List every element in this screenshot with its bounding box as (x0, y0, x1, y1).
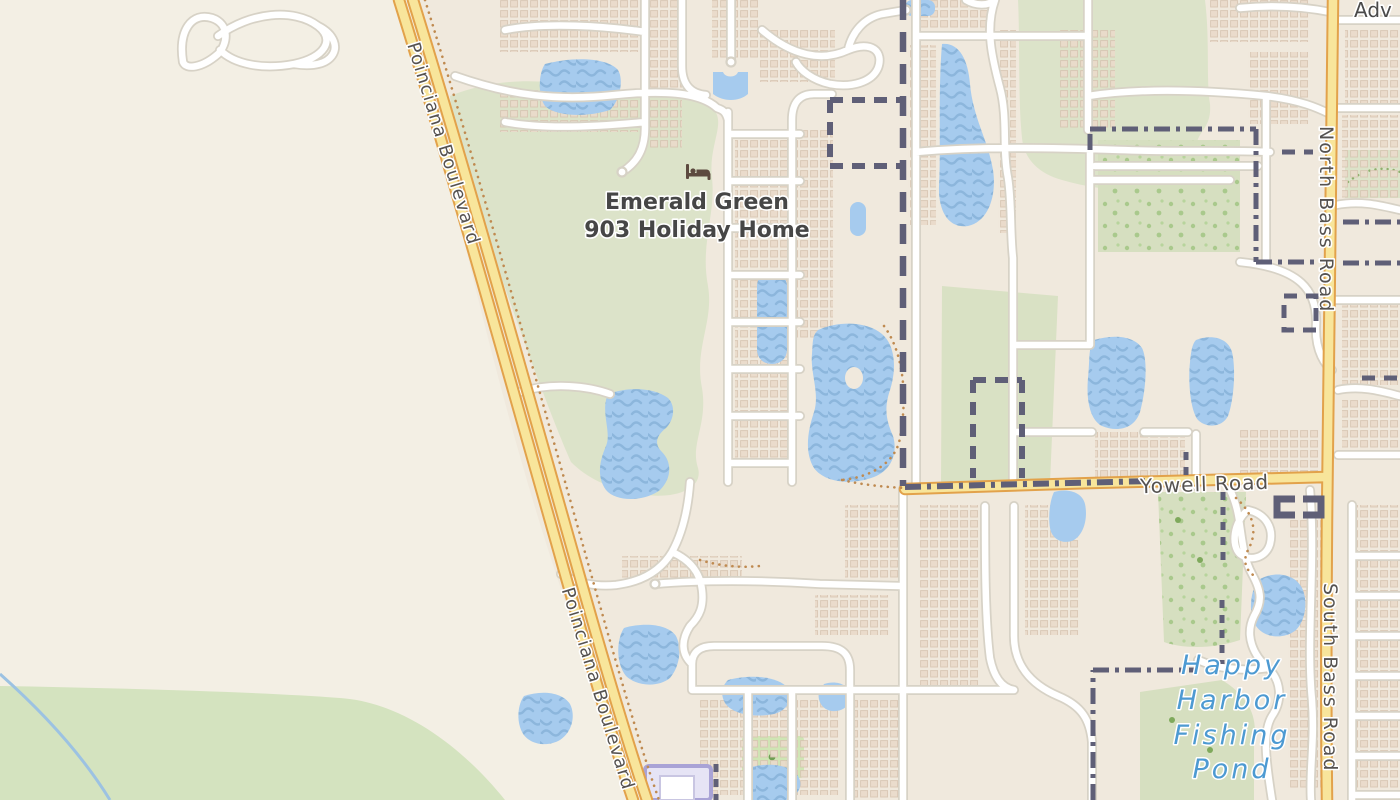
road-label-north-bass: North Bass Road (1315, 126, 1337, 313)
poi-label-line2: 903 Holiday Home (584, 218, 809, 243)
road-label-yowell: Yowell Road (1139, 470, 1270, 499)
water-label-line3: Fishing (1174, 720, 1291, 751)
map-tiles: Emerald Green 903 Holiday Home Poinciana… (0, 0, 1400, 800)
poi-label-line1: Emerald Green (605, 190, 789, 215)
clubhouse-building (645, 766, 711, 800)
clipped-label-top-right: Adv (1354, 0, 1392, 22)
water-label-line4: Pond (1192, 754, 1271, 785)
water-label-line2: Harbor (1177, 685, 1288, 716)
water-label-line1: Happy (1181, 650, 1283, 681)
map-canvas[interactable]: Emerald Green 903 Holiday Home Poinciana… (0, 0, 1400, 800)
road-label-south-bass: South Bass Road (1319, 583, 1341, 772)
lake-with-island (808, 324, 895, 482)
